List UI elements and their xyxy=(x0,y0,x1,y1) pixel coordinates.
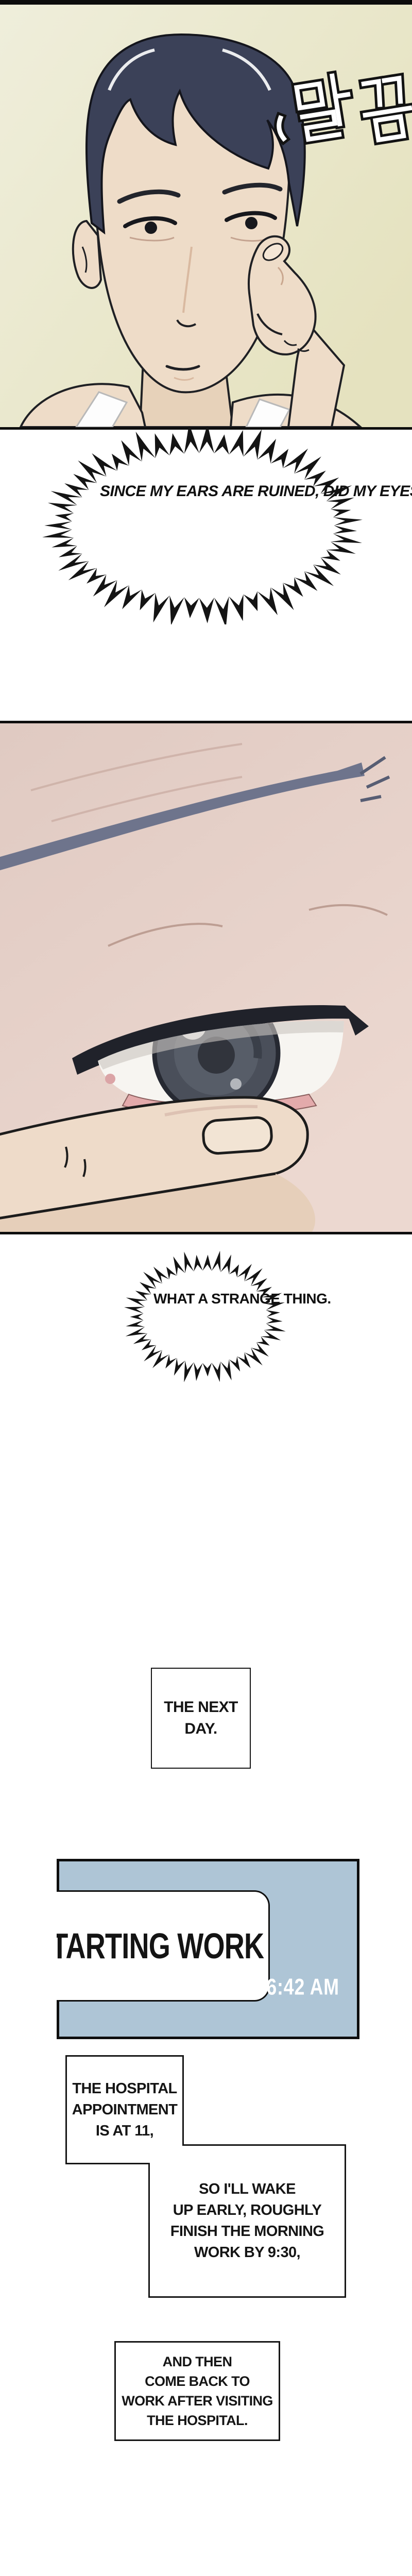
thought-bubble-strange xyxy=(118,1251,291,1383)
thought-bubble-ears xyxy=(37,427,369,624)
caption-next-day: THE NEXT DAY. xyxy=(151,1668,251,1769)
bubble-ears-text: SINCE MY EARS ARE RUINED, DID MY EYES GE… xyxy=(100,481,306,502)
box-union-patch xyxy=(147,2143,152,2163)
fingernail xyxy=(202,1116,272,1154)
caption-wake-early: SO I'LL WAKE UP EARLY, ROUGHLY FINISH TH… xyxy=(148,2144,346,2298)
panel-time-card: STARTING WORK 06:42 AM xyxy=(57,1859,359,2039)
panel-eye-closeup xyxy=(0,721,412,1234)
webtoon-page: SINCE MY EARS ARE RUINED, DID MY EYES GE… xyxy=(0,0,412,2576)
face-artwork xyxy=(0,5,412,427)
time-card-clock: 06:42 AM xyxy=(256,1974,339,2000)
time-card-label-plate: STARTING WORK xyxy=(57,1890,270,2002)
top-border xyxy=(0,0,412,5)
panel-face-closeup xyxy=(0,5,412,430)
bubble-strange-text: WHAT A STRANGE THING. xyxy=(153,1289,256,1308)
eye-artwork xyxy=(0,723,412,1232)
box-union-patch xyxy=(147,2143,182,2149)
caption-return-work: AND THEN COME BACK TO WORK AFTER VISITIN… xyxy=(114,2341,280,2441)
time-card-label: STARTING WORK xyxy=(57,1925,264,1967)
